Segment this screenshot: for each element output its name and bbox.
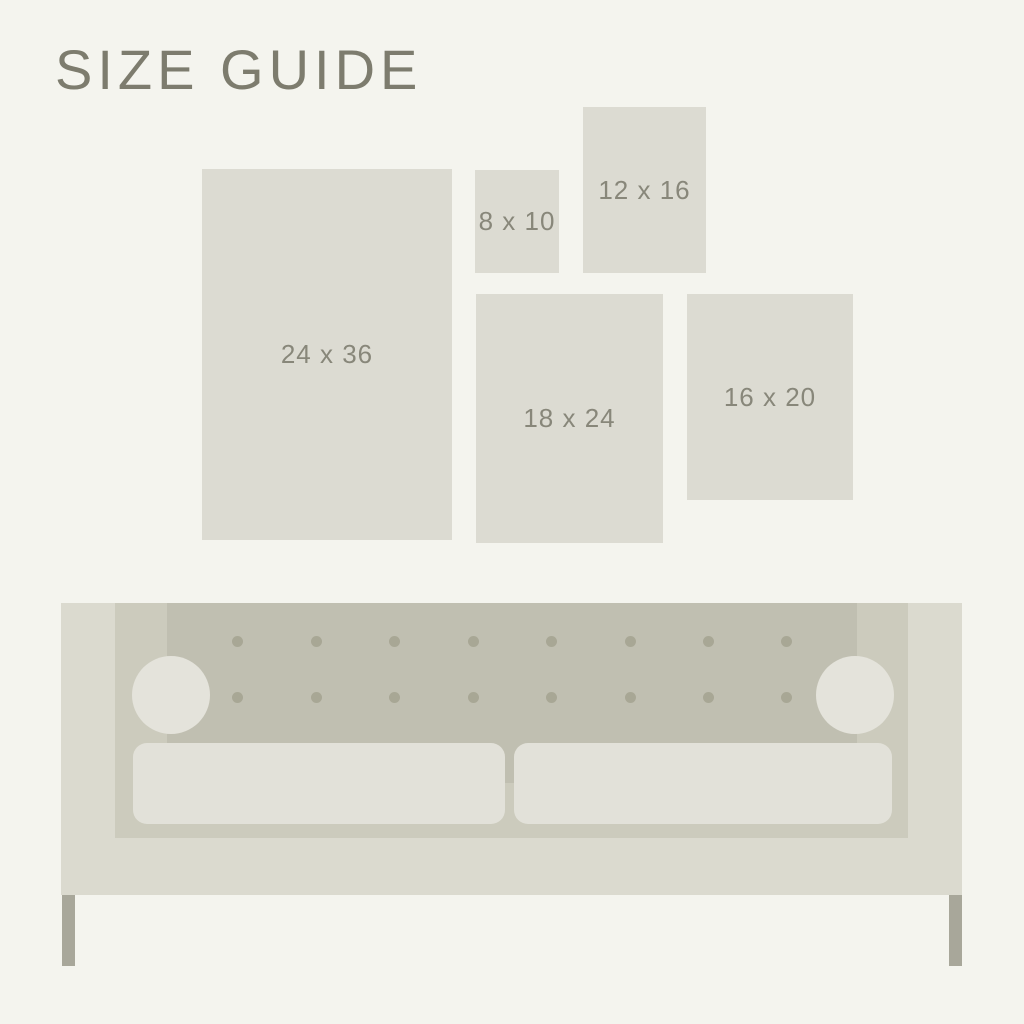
size-guide-page: SIZE GUIDE 24 x 368 x 1012 x 1618 x 2416… (0, 0, 1024, 1024)
size-label-12x16: 12 x 16 (598, 175, 690, 206)
size-swatch-24x36: 24 x 36 (202, 169, 452, 540)
tufting-button (468, 692, 479, 703)
size-swatch-16x20: 16 x 20 (687, 294, 853, 500)
tufting-button (389, 692, 400, 703)
size-label-8x10: 8 x 10 (479, 206, 556, 237)
tufting-button (232, 692, 243, 703)
tufting-button (468, 636, 479, 647)
page-title: SIZE GUIDE (55, 36, 422, 103)
tufting-button (703, 636, 714, 647)
size-swatch-18x24: 18 x 24 (476, 294, 663, 543)
tufting-button (625, 636, 636, 647)
tufting-button (389, 636, 400, 647)
bolster-pillow (132, 656, 210, 734)
size-swatch-8x10: 8 x 10 (475, 170, 559, 273)
seat-cushion (133, 743, 505, 824)
bolster-pillow (816, 656, 894, 734)
tufting-button (311, 636, 322, 647)
tufting-button (546, 636, 557, 647)
tufting-button (232, 636, 243, 647)
sofa-leg (949, 895, 962, 966)
tufting-button (311, 692, 322, 703)
seat-cushion (514, 743, 892, 824)
size-label-18x24: 18 x 24 (523, 403, 615, 434)
tufting-button (703, 692, 714, 703)
size-label-16x20: 16 x 20 (724, 382, 816, 413)
size-swatch-12x16: 12 x 16 (583, 107, 706, 273)
sofa-leg (62, 895, 75, 966)
size-label-24x36: 24 x 36 (281, 339, 373, 370)
tufting-button (625, 692, 636, 703)
tufting-button (546, 692, 557, 703)
tufting-button (781, 636, 792, 647)
tufting-button (781, 692, 792, 703)
